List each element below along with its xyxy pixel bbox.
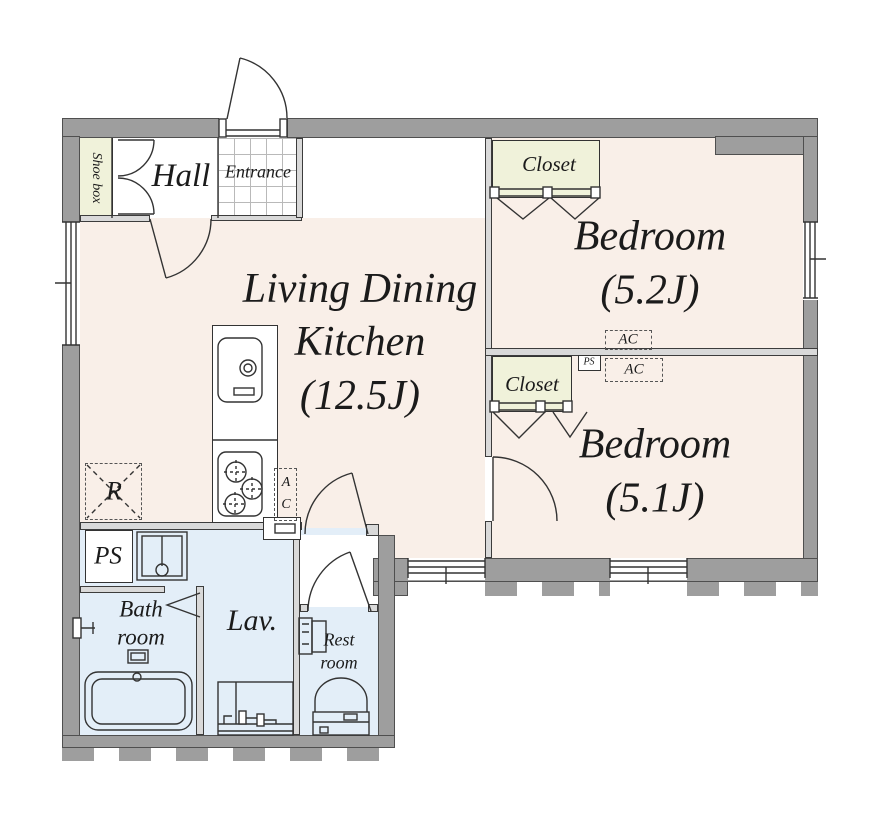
- refrigerator-label: R: [106, 476, 122, 509]
- wall-rest-top-left-stub: [300, 604, 308, 612]
- ldk-label: Living Dining Kitchen (12.5J): [243, 263, 478, 423]
- bedroom-lower-size: (5.1J): [579, 472, 731, 526]
- bath-room-label: Bath room: [117, 595, 165, 650]
- window-left: [62, 222, 80, 345]
- ac-kitchen-label-a: A: [282, 474, 291, 492]
- entrance-door: [227, 58, 287, 119]
- right-wall-upper: [803, 136, 818, 224]
- bedroom-upper-name: Bedroom: [574, 210, 726, 264]
- shoe-box-label: Shoe box: [87, 153, 105, 204]
- ac-upper-label: AC: [618, 331, 637, 350]
- ac-lower-label: AC: [624, 361, 643, 380]
- lav-label: Lav.: [227, 602, 277, 640]
- ps-closet-label: PS: [583, 357, 594, 370]
- bath-room-label-line1: Bath: [117, 595, 165, 623]
- right-wall-lower: [803, 298, 818, 582]
- bath-room-label-line2: room: [117, 623, 165, 651]
- hall-label: Hall: [152, 156, 211, 198]
- window-bottom-bedroom: [610, 558, 687, 580]
- ac-kitchen-label-c: C: [281, 496, 290, 514]
- floor-plan: Shoe box Hall Entrance Living Dining Kit…: [0, 0, 878, 818]
- top-wall-right: [287, 118, 818, 138]
- rest-room-label-line2: room: [320, 652, 357, 675]
- lav-vestibule-floor: [300, 535, 378, 607]
- ps-utility-label: PS: [94, 540, 122, 572]
- rest-room-label-line1: Rest: [320, 629, 357, 652]
- bedroom-lower-label: Bedroom (5.1J): [579, 418, 731, 526]
- wall-bath-top: [80, 586, 165, 593]
- bottom-teeth-wet: [62, 748, 395, 761]
- bottom-wall-wet: [62, 735, 395, 748]
- wet-area-right-wall: [378, 535, 395, 748]
- bedroom-upper-size: (5.2J): [574, 264, 726, 318]
- wall-rest-top-right-stub: [368, 604, 378, 612]
- rest-room-label: Rest room: [320, 629, 357, 676]
- wall-entrance-ldk-bottom: [211, 215, 302, 221]
- bedroom-lower-name: Bedroom: [579, 418, 731, 472]
- wall-lav-vestibule: [293, 535, 300, 735]
- window-right: [803, 222, 818, 300]
- wall-ldk-wet-post: [366, 524, 379, 536]
- closet-lower-label: Closet: [505, 371, 559, 397]
- entrance-opening: [219, 118, 287, 138]
- window-bottom-ldk: [408, 558, 485, 580]
- ldk-label-line1: Living Dining: [243, 263, 478, 316]
- wall-ldk-bedrooms-upper: [485, 138, 492, 457]
- wall-entrance-ldk-right: [296, 138, 303, 218]
- ldk-label-line2: Kitchen: [243, 316, 478, 369]
- wall-hall-ldk-left: [80, 215, 150, 222]
- left-wall-upper: [62, 136, 80, 224]
- entrance-label: Entrance: [225, 161, 291, 184]
- wall-bath-right: [196, 586, 204, 735]
- balcony-teeth-mid: [485, 582, 610, 596]
- bedroom-upper-label: Bedroom (5.2J): [574, 210, 726, 318]
- wall-ldk-bedrooms-lower: [485, 521, 492, 558]
- top-wall-left: [62, 118, 220, 138]
- balcony-teeth-right: [687, 582, 818, 596]
- ldk-label-line3: (12.5J): [243, 370, 478, 423]
- left-wall-lower: [62, 343, 80, 748]
- closet-upper-label: Closet: [522, 151, 576, 177]
